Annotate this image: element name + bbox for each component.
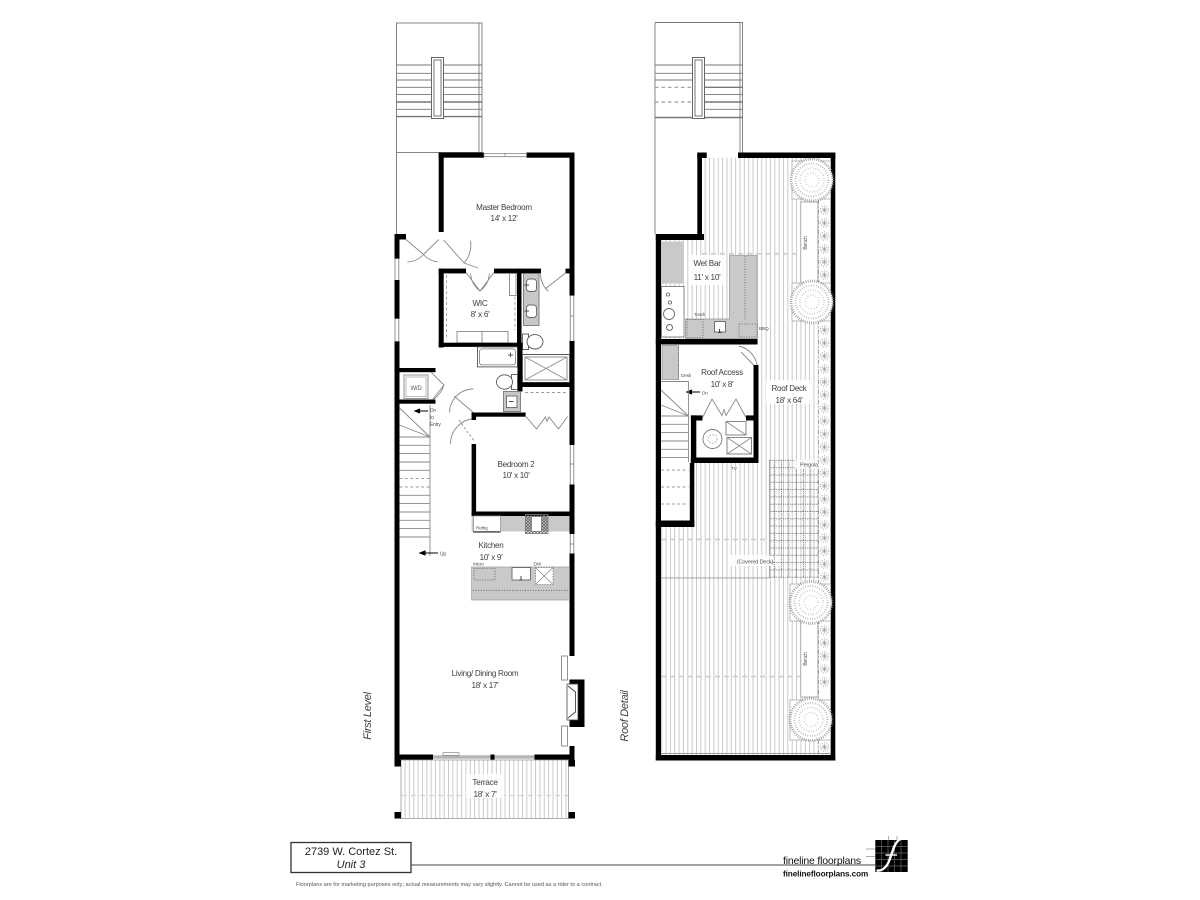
svg-text:Entry: Entry xyxy=(430,422,441,428)
svg-text:DW: DW xyxy=(534,562,542,568)
svg-text:Dn: Dn xyxy=(702,391,708,397)
svg-text:Kitchen: Kitchen xyxy=(479,541,504,550)
svg-text:Pergola: Pergola xyxy=(800,463,819,469)
svg-text:10' x 10': 10' x 10' xyxy=(503,471,531,480)
svg-text:18' x 64': 18' x 64' xyxy=(776,396,804,405)
svg-text:18' x 7': 18' x 7' xyxy=(473,790,497,799)
svg-text:Refrig: Refrig xyxy=(476,526,488,532)
svg-text:2739 W. Cortez St.: 2739 W. Cortez St. xyxy=(305,846,397,858)
svg-text:8' x 6': 8' x 6' xyxy=(471,310,491,319)
svg-text:Living/ Dining Room: Living/ Dining Room xyxy=(452,669,519,678)
svg-text:Bench: Bench xyxy=(803,236,809,250)
svg-text:Floorplans are for marketing p: Floorplans are for marketing purposes on… xyxy=(296,882,603,888)
svg-text:(Covered Deck): (Covered Deck) xyxy=(737,560,774,566)
svg-text:TV: TV xyxy=(731,466,738,472)
svg-text:Terrace: Terrace xyxy=(472,778,498,787)
svg-text:Roof Access: Roof Access xyxy=(701,368,743,377)
svg-text:Master Bedroom: Master Bedroom xyxy=(476,203,532,212)
svg-text:11' x 10': 11' x 10' xyxy=(694,273,721,282)
svg-text:Micro: Micro xyxy=(473,562,484,568)
svg-text:BBQ: BBQ xyxy=(759,326,769,332)
svg-text:Up: Up xyxy=(440,552,446,558)
svg-text:Desk: Desk xyxy=(681,373,692,379)
svg-text:18' x 17': 18' x 17' xyxy=(472,681,500,690)
svg-text:Bedroom 2: Bedroom 2 xyxy=(498,460,536,469)
svg-text:Trash: Trash xyxy=(694,312,706,318)
svg-text:WIC: WIC xyxy=(472,299,487,308)
svg-text:10' x 9': 10' x 9' xyxy=(480,553,503,562)
svg-text:Bench: Bench xyxy=(803,652,809,666)
svg-text:First Level: First Level xyxy=(362,691,374,739)
svg-text:finelinefloorplans.com: finelinefloorplans.com xyxy=(783,870,868,879)
svg-text:to: to xyxy=(430,415,434,421)
svg-text:fineline floorplans: fineline floorplans xyxy=(783,855,861,867)
svg-text:Unit 3: Unit 3 xyxy=(337,859,367,871)
svg-text:W/D: W/D xyxy=(410,386,422,392)
svg-text:Dn: Dn xyxy=(430,408,436,414)
svg-text:14' x 12': 14' x 12' xyxy=(491,214,519,223)
svg-text:Roof Deck: Roof Deck xyxy=(771,384,807,393)
svg-text:Wet Bar: Wet Bar xyxy=(693,259,721,268)
svg-text:10' x 8': 10' x 8' xyxy=(711,380,734,389)
svg-text:Roof Detail: Roof Detail xyxy=(619,690,631,742)
